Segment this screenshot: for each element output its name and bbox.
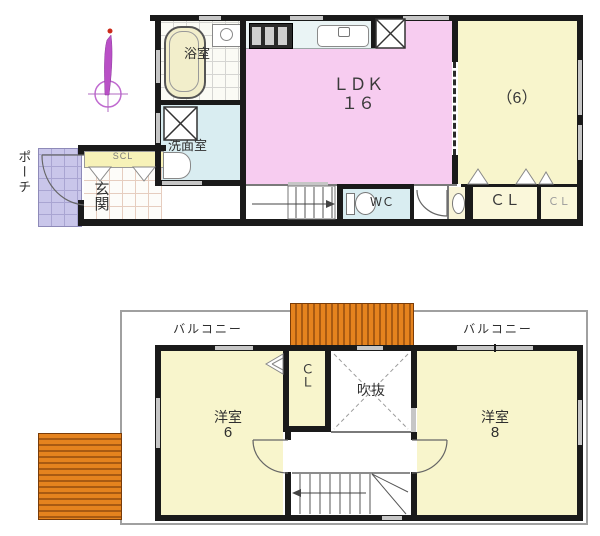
bathtub-inner-line (169, 31, 199, 92)
f1-partition-bottom (452, 155, 458, 184)
f2-void-east-stub (411, 432, 417, 440)
washroom-label: 洗面室 (168, 139, 207, 153)
f1-partition-top (452, 15, 458, 62)
f1-stairs (252, 186, 335, 219)
f1-window-bath-left (156, 50, 160, 83)
north-arrow-icon (88, 29, 128, 113)
f2-window-bedroom-left-side (156, 398, 160, 448)
f2-hall-west-wall (285, 472, 291, 521)
f1-kitchen-stub (371, 15, 376, 48)
toilet-tank-icon (346, 193, 355, 215)
f2-closet-west (283, 351, 289, 431)
f1-wall-closet-west (465, 184, 473, 219)
bedroom-right-size: 8 (440, 425, 550, 442)
ldk-label: ＬＤＫ １６ (320, 76, 396, 113)
bedroom-left-name: 洋室 (180, 410, 276, 425)
bath-counter-basin (220, 28, 233, 41)
f1-genkan-west-bottom (78, 200, 84, 226)
f2-wall-bottom (155, 515, 583, 521)
vanity-basin-icon (163, 152, 191, 179)
f2-void-east-window (411, 408, 416, 432)
closet-small-label: ＣＬ (541, 196, 577, 208)
bathroom-label: 浴室 (184, 47, 210, 61)
roof-hatch-left (38, 433, 122, 520)
wc-label: ＷＣ (370, 196, 394, 209)
f1-window-ldk-top (403, 16, 449, 20)
roof-hatch-center (290, 303, 414, 351)
f1-window-bath-top (199, 16, 221, 20)
f2-closet-east (325, 351, 331, 426)
f2-void-south-line (331, 431, 411, 433)
floor-plan: ポーチ 玄関 SCL 浴室 洗面室 ＬＤＫ １６ （6） ＷＣ ＣＬ ＣＬ (0, 0, 600, 536)
f2-hall-west-stub (285, 432, 291, 440)
closet-large-label: ＣＬ (473, 193, 537, 210)
ldk-size: １６ (320, 95, 396, 114)
tatami-room-label: （6） (487, 90, 547, 108)
f1-window-kitchen (290, 16, 323, 20)
f1-niche-line (447, 186, 449, 219)
f1-wall-bottom (78, 219, 583, 226)
f1-window-wash-south (162, 181, 202, 185)
faucet-icon (338, 27, 350, 37)
f1-window-stair-top (288, 182, 328, 186)
f2-window-hall-bottom (382, 516, 402, 520)
balcony-left-label: バルコニー (150, 323, 266, 336)
f1-window-tatami-right1 (578, 60, 582, 115)
shoe-closet-label: SCL (84, 152, 162, 162)
porch-label: ポーチ (16, 150, 30, 228)
bedroom-left-label: 洋室 6 (180, 410, 276, 442)
f1-partition-dashed (453, 62, 456, 155)
f2-window-void-top (357, 346, 383, 350)
wc-hall-door-arc (417, 190, 447, 216)
f1-wall-wc-east (410, 184, 414, 219)
f1-wall-bath-east (240, 15, 246, 186)
f2-window-bedroom-left-top (215, 346, 253, 350)
f2-window-tick (494, 344, 496, 352)
f1-wall-wc-north (337, 184, 410, 189)
f1-closet-top-line (461, 184, 577, 187)
ldk-name: ＬＤＫ (320, 76, 396, 95)
balcony-right-label: バルコニー (440, 323, 556, 336)
f1-window-tatami-right2 (578, 125, 582, 160)
f2-window-bedroom-right-side (578, 400, 582, 445)
closet2-label: ＣＬ (299, 362, 313, 412)
bedroom-left-size: 6 (180, 425, 276, 442)
f2-hall-east-wall (411, 472, 417, 521)
f1-wall-hall-stub (240, 186, 246, 219)
void-label: 吹抜 (341, 383, 401, 398)
hall-basin-icon (452, 193, 465, 214)
bedroom-right-name: 洋室 (440, 410, 550, 425)
f1-window-wash-left (156, 113, 160, 143)
f1-wall-wc-west (337, 184, 343, 219)
f2-void-east-top (411, 351, 417, 408)
entrance-label: 玄関 (92, 181, 109, 229)
bedroom-right-label: 洋室 8 (440, 410, 550, 442)
porch-floor (38, 148, 82, 227)
f1-wall-bath-south (155, 100, 245, 105)
f1-wall-right (577, 15, 583, 226)
stove-icon (249, 23, 293, 49)
